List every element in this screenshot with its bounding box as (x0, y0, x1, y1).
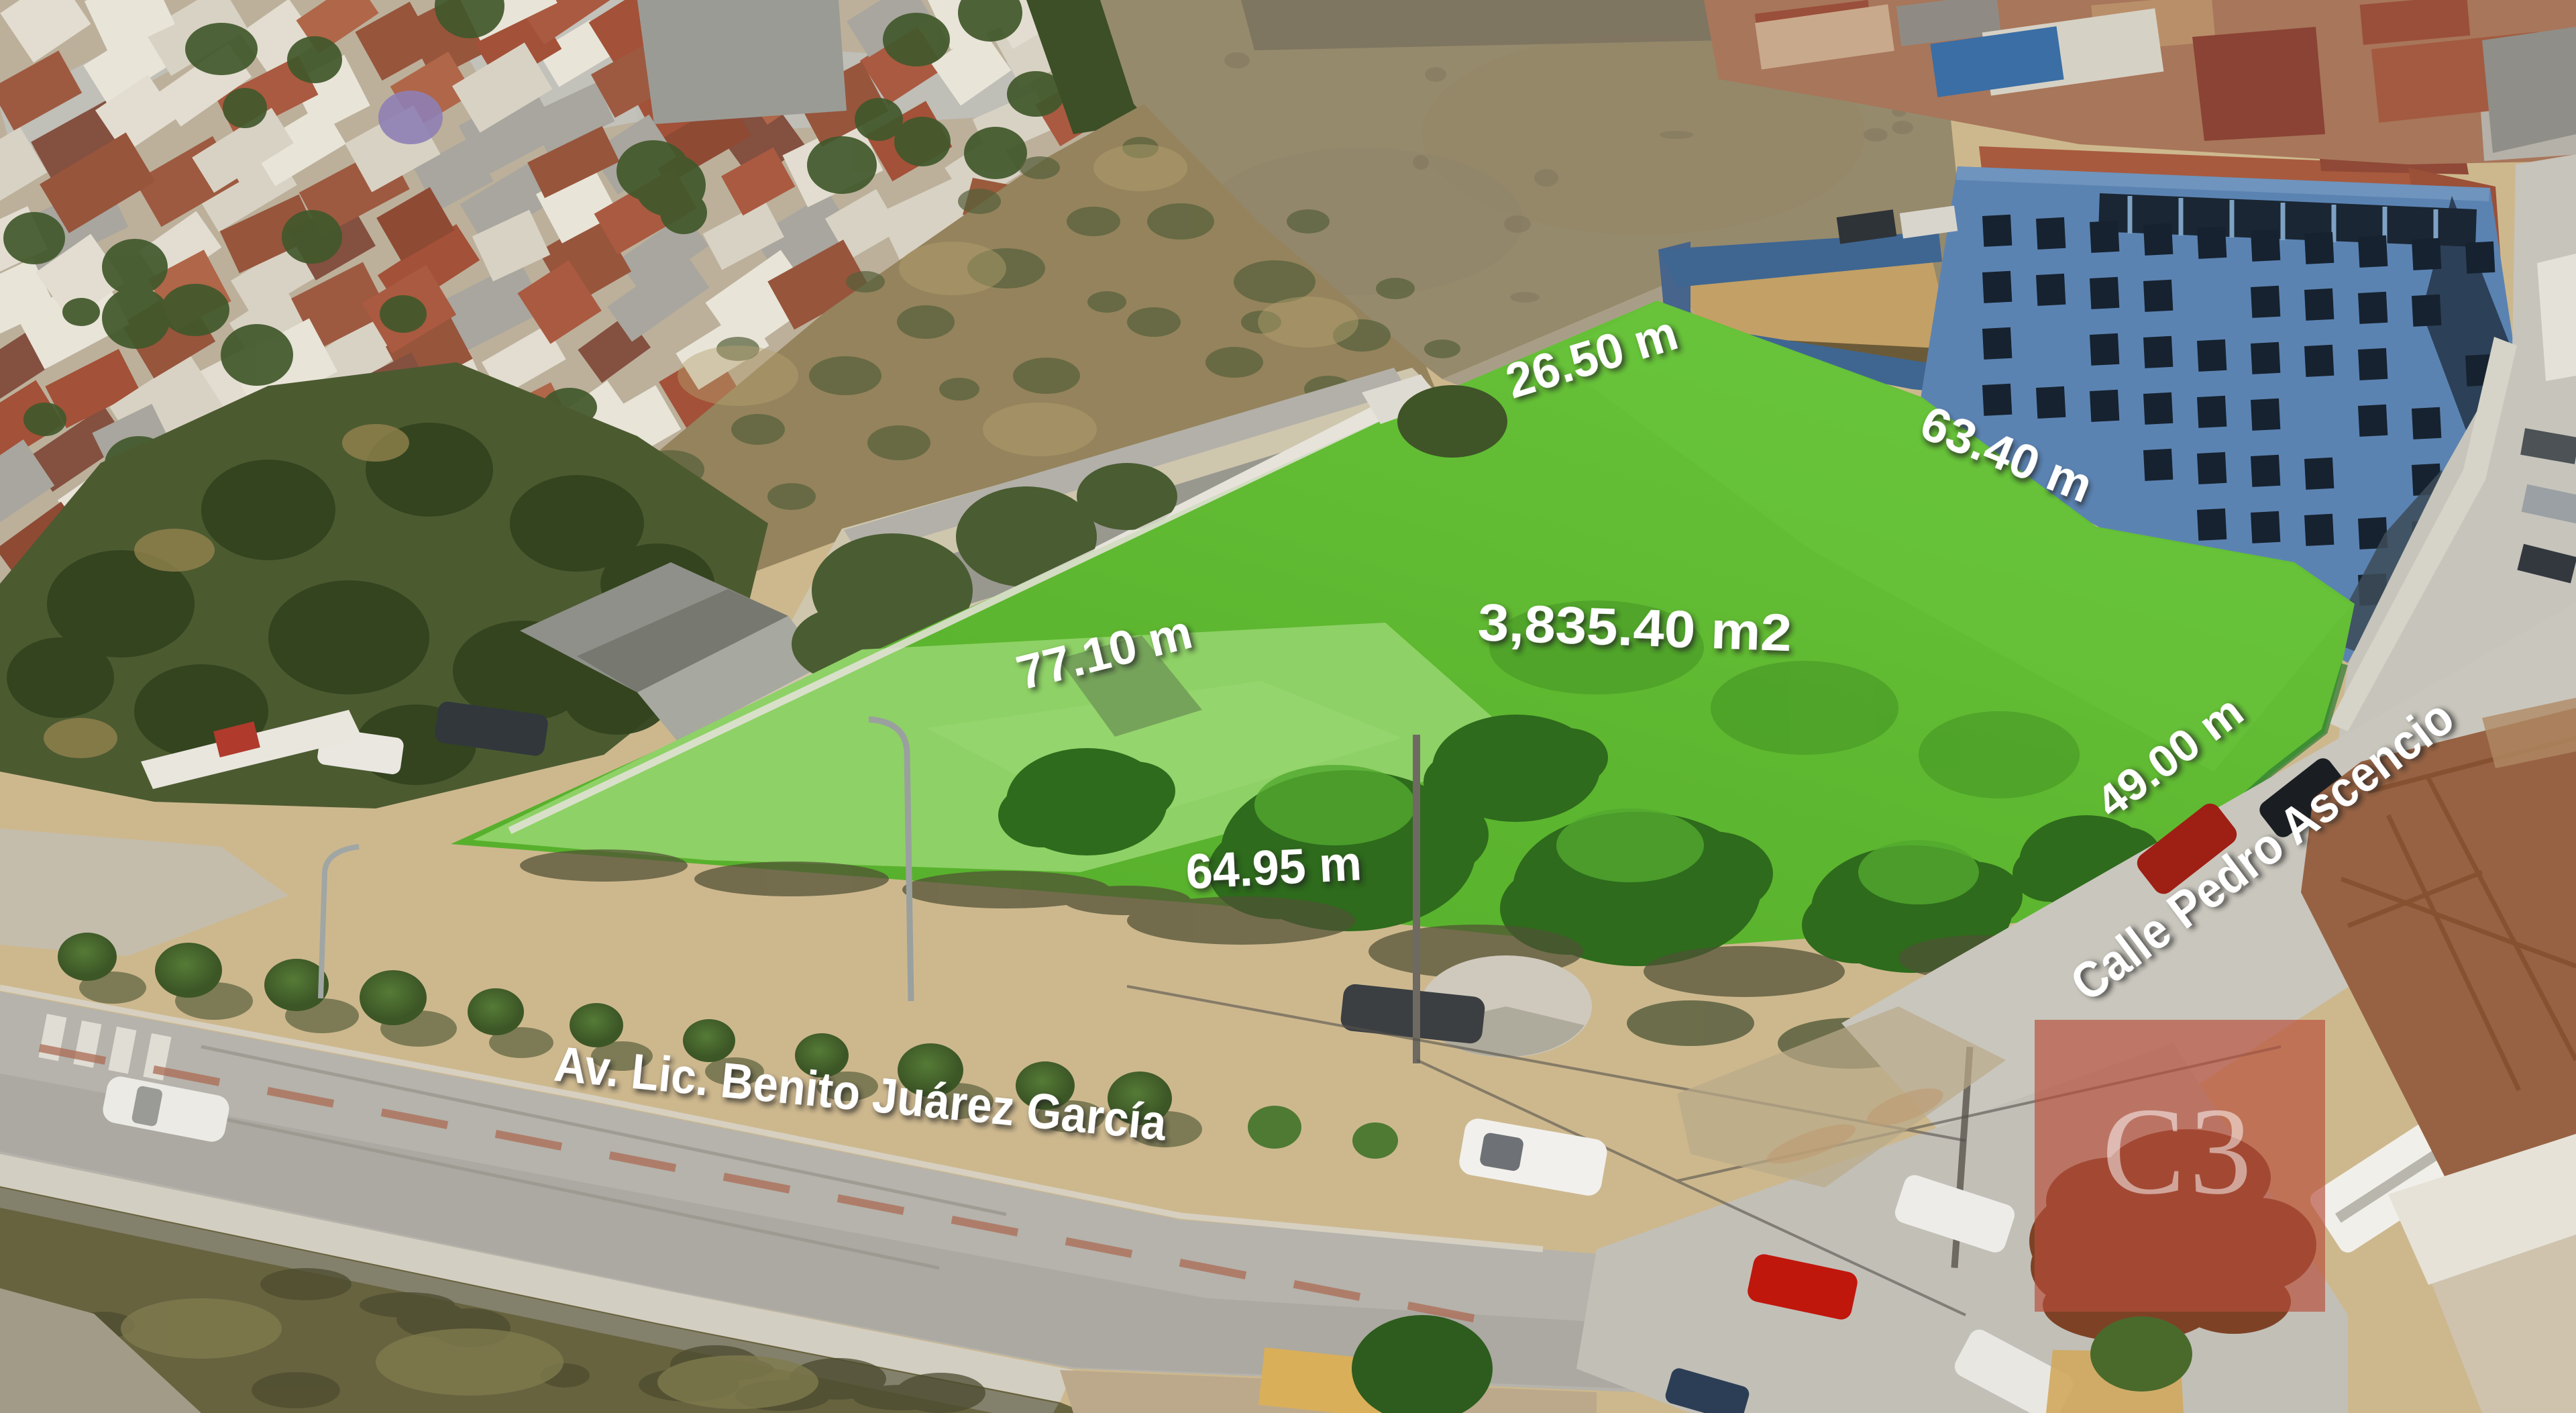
svg-text:3,835.40 m2: 3,835.40 m2 (1477, 592, 1793, 662)
svg-text:C3: C3 (2102, 1082, 2255, 1220)
svg-text:64.95 m: 64.95 m (1185, 836, 1363, 900)
